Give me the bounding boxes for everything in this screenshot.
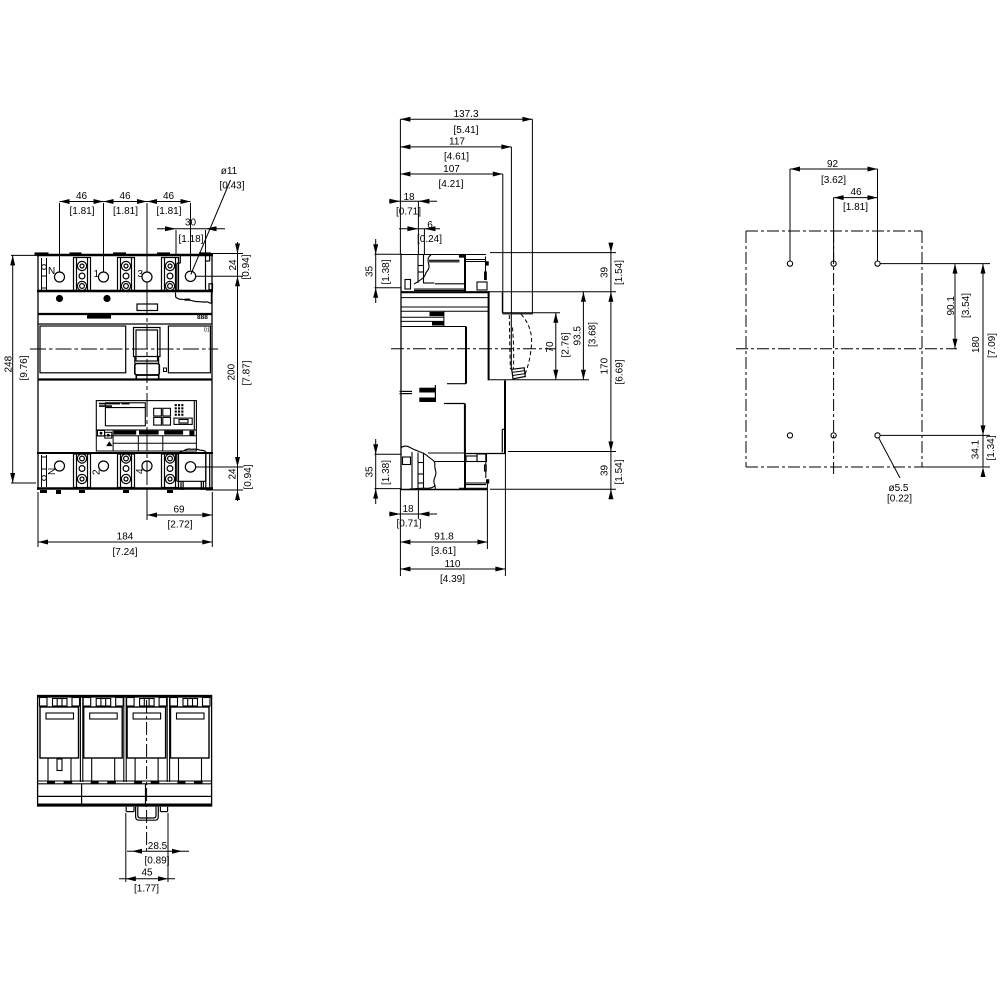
svg-text:888: 888: [197, 314, 208, 321]
svg-text:[0.22]: [0.22]: [887, 494, 912, 505]
svg-text:01: 01: [204, 328, 210, 334]
svg-text:[3.62]: [3.62]: [821, 175, 846, 186]
svg-text:46: 46: [76, 191, 88, 202]
svg-text:[1.38]: [1.38]: [381, 259, 392, 284]
svg-text:200: 200: [227, 363, 238, 380]
svg-text:N: N: [48, 266, 55, 277]
svg-text:[3.54]: [3.54]: [961, 293, 972, 318]
svg-text:35: 35: [365, 466, 376, 478]
svg-text:91.8: 91.8: [434, 532, 454, 543]
svg-text:[1.81]: [1.81]: [113, 206, 138, 217]
svg-text:46: 46: [850, 187, 862, 198]
svg-text:[4.21]: [4.21]: [438, 179, 463, 190]
svg-text:[6.69]: [6.69]: [615, 359, 626, 384]
svg-text:[0.94]: [0.94]: [243, 464, 254, 489]
svg-text:[1.54]: [1.54]: [614, 260, 625, 285]
svg-text:93.5: 93.5: [573, 326, 584, 346]
svg-text:46: 46: [119, 191, 131, 202]
svg-text:[4.61]: [4.61]: [444, 152, 469, 163]
svg-text:[7.09]: [7.09]: [987, 333, 998, 358]
svg-text:[1.77]: [1.77]: [134, 884, 159, 895]
svg-text:24: 24: [228, 259, 239, 271]
svg-text:46: 46: [163, 191, 175, 202]
svg-text:45: 45: [141, 868, 153, 879]
svg-text:[1.81]: [1.81]: [843, 202, 868, 213]
svg-text:35: 35: [365, 265, 376, 277]
svg-text:[0.89]: [0.89]: [144, 856, 169, 867]
svg-text:[1.81]: [1.81]: [156, 206, 181, 217]
svg-text:[0.71]: [0.71]: [396, 206, 421, 217]
svg-text:137.3: 137.3: [453, 109, 478, 120]
svg-text:6: 6: [427, 220, 433, 231]
svg-text:[1.18]: [1.18]: [178, 234, 203, 245]
svg-text:[0.24]: [0.24]: [417, 234, 442, 245]
svg-text:[3.68]: [3.68]: [588, 322, 599, 347]
svg-text:[0.71]: [0.71]: [396, 518, 421, 529]
svg-text:[3.61]: [3.61]: [431, 546, 456, 557]
svg-text:34.1: 34.1: [971, 439, 982, 459]
svg-text:170: 170: [600, 357, 611, 374]
svg-text:[4.39]: [4.39]: [440, 574, 465, 585]
svg-text:30: 30: [185, 218, 197, 229]
svg-text:28.5: 28.5: [148, 841, 168, 852]
svg-text:70: 70: [545, 341, 556, 353]
svg-text:[7.87]: [7.87]: [242, 360, 253, 385]
svg-text:[1.54]: [1.54]: [614, 459, 625, 484]
svg-text:[1.38]: [1.38]: [381, 460, 392, 485]
svg-text:ø11: ø11: [221, 166, 238, 177]
svg-text:180: 180: [971, 336, 982, 353]
svg-text:[5.41]: [5.41]: [453, 125, 478, 136]
svg-text:[1.34]: [1.34]: [986, 435, 997, 460]
svg-text:[1.81]: [1.81]: [69, 206, 94, 217]
svg-text:90.1: 90.1: [946, 296, 957, 316]
svg-text:18: 18: [402, 504, 414, 515]
svg-text:3: 3: [138, 269, 144, 280]
svg-text:[2.76]: [2.76]: [561, 332, 572, 357]
svg-text:[7.24]: [7.24]: [112, 547, 137, 558]
svg-text:N: N: [47, 468, 58, 475]
svg-text:110: 110: [445, 559, 461, 570]
svg-text:107: 107: [443, 164, 460, 175]
svg-text:4: 4: [135, 468, 146, 474]
svg-text:39: 39: [600, 464, 611, 476]
svg-text:184: 184: [117, 532, 134, 543]
svg-text:[0.94]: [0.94]: [241, 254, 252, 279]
svg-text:24: 24: [228, 468, 239, 480]
svg-text:[2.72]: [2.72]: [167, 520, 192, 531]
svg-text:[9.76]: [9.76]: [19, 355, 30, 380]
svg-text:92: 92: [827, 159, 839, 170]
svg-text:117: 117: [449, 137, 465, 148]
svg-text:248: 248: [4, 355, 15, 372]
svg-text:[0.43]: [0.43]: [219, 181, 244, 192]
svg-text:2: 2: [92, 469, 103, 475]
svg-text:ø5.5: ø5.5: [888, 483, 908, 494]
svg-text:69: 69: [173, 505, 185, 516]
svg-text:18: 18: [403, 192, 415, 203]
svg-text:1: 1: [94, 269, 100, 280]
svg-text:39: 39: [600, 266, 611, 278]
